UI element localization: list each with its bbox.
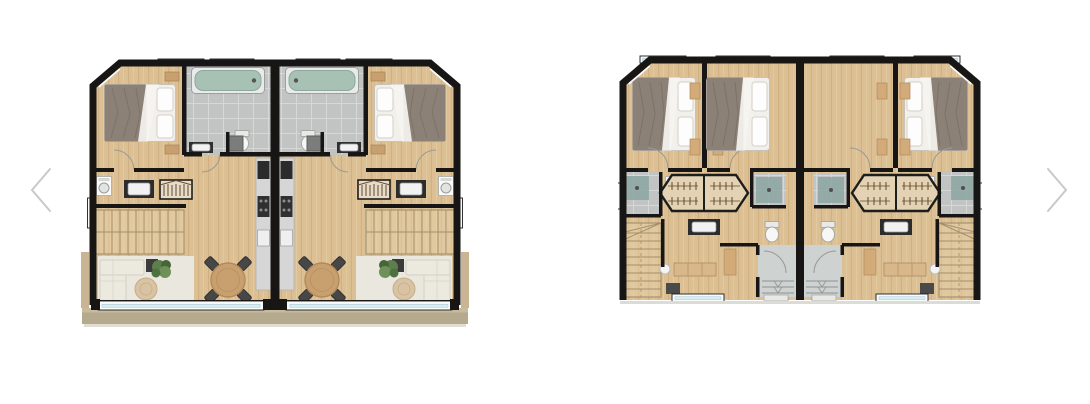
wardrobe [160, 180, 192, 199]
floor-plans-carousel [0, 0, 1090, 404]
nightstand [165, 145, 179, 154]
bedside-cabinet [690, 139, 700, 155]
carousel-prev-button[interactable] [26, 164, 56, 216]
living-room [98, 256, 194, 304]
chevron-right-icon [1044, 166, 1070, 214]
floor-plan-living-level [80, 58, 470, 335]
kitchen-counter [256, 158, 271, 290]
chevron-left-icon [28, 166, 54, 214]
floor-plan-bedroom-level [618, 55, 982, 309]
kitchen-sink [258, 230, 270, 246]
plant [152, 260, 172, 278]
mirrored-unit [275, 59, 463, 310]
washer [97, 177, 112, 196]
bed [633, 78, 696, 151]
bathtub [192, 68, 265, 94]
shower-room [752, 173, 786, 207]
fridge [258, 161, 270, 179]
bedside-cabinet [690, 83, 700, 99]
walk-in-wardrobe [660, 175, 748, 211]
party-wall [796, 58, 804, 300]
party-wall [271, 61, 280, 306]
nightstand [165, 72, 179, 81]
window-band [91, 299, 275, 310]
entry-vestibule [758, 245, 796, 301]
shadow [620, 301, 800, 304]
bed [105, 85, 176, 142]
stove [258, 196, 270, 217]
toilet [765, 222, 779, 243]
round-rug [135, 278, 157, 300]
bathroom [621, 172, 661, 216]
dining-table [204, 256, 252, 304]
entry-door-sill [764, 295, 788, 301]
stairs [96, 210, 184, 254]
bench [674, 263, 716, 276]
shower-mat [228, 136, 243, 151]
stairs [621, 223, 661, 297]
carousel-next-button[interactable] [1042, 164, 1072, 216]
cabinet [724, 249, 736, 275]
doormat [666, 283, 680, 294]
